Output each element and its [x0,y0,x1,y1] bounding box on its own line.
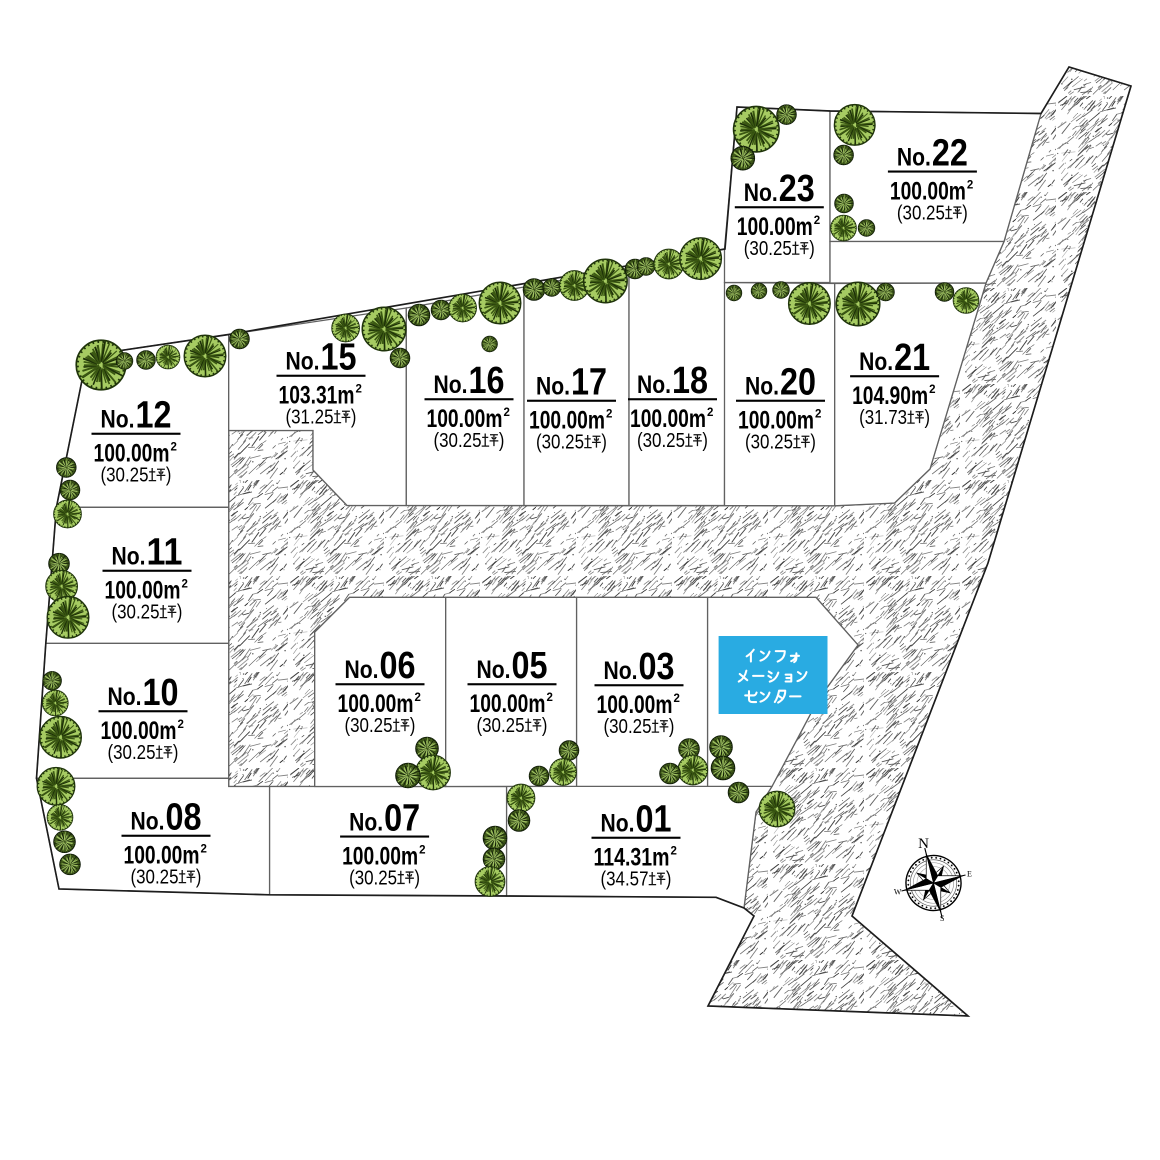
svg-text:06: 06 [380,645,416,687]
svg-text:100.00m: 100.00m [338,690,414,718]
svg-text:103.31m: 103.31m [279,382,355,410]
svg-text:): ) [196,867,202,889]
svg-text:2: 2 [814,215,820,227]
svg-text:No.: No. [131,808,165,836]
svg-text:No.: No. [601,810,635,838]
svg-text:2: 2 [504,407,510,419]
svg-text:): ) [666,869,672,891]
svg-text:2: 2 [606,409,612,421]
svg-text:104.90m: 104.90m [852,382,928,410]
svg-text:No.: No. [286,348,320,376]
svg-text:100.00m: 100.00m [94,440,170,468]
svg-text:(30.25: (30.25 [897,202,945,224]
svg-text:(30.25: (30.25 [477,715,525,737]
svg-text:17: 17 [571,362,607,404]
svg-text:114.31m: 114.31m [594,844,670,872]
svg-text:(30.25: (30.25 [345,715,393,737]
svg-text:100.00m: 100.00m [342,842,418,870]
svg-text:2: 2 [671,846,677,858]
svg-text:No.: No. [897,143,931,171]
svg-text:No.: No. [112,543,146,571]
svg-text:): ) [177,602,183,624]
svg-text:100.00m: 100.00m [597,691,673,719]
svg-text:): ) [542,715,548,737]
svg-text:11: 11 [147,532,183,574]
svg-text:100.00m: 100.00m [529,407,605,435]
svg-text:): ) [702,430,708,452]
svg-text:2: 2 [182,579,188,591]
svg-text:No.: No. [536,373,570,401]
svg-text:10: 10 [143,672,179,714]
svg-text:100.00m: 100.00m [101,717,177,745]
svg-text:No.: No. [477,656,511,684]
svg-text:No.: No. [859,348,893,376]
svg-text:(30.25: (30.25 [101,465,149,487]
svg-text:(30.25: (30.25 [536,432,584,454]
svg-text:2: 2 [707,407,713,419]
svg-text:(30.25: (30.25 [112,602,160,624]
svg-text:): ) [809,238,815,260]
svg-text:2: 2 [815,409,821,421]
svg-text:(30.25: (30.25 [745,432,793,454]
svg-text:100.00m: 100.00m [105,577,181,605]
svg-text:): ) [669,716,675,738]
svg-text:22: 22 [932,132,968,174]
svg-text:(34.57: (34.57 [601,869,649,891]
svg-text:E: E [967,870,972,879]
svg-text:01: 01 [636,799,672,841]
svg-text:N: N [918,836,929,852]
svg-text:): ) [415,867,421,889]
svg-text:(30.25: (30.25 [744,238,792,260]
svg-text:No.: No. [745,373,779,401]
svg-text:No.: No. [604,657,638,685]
svg-text:(31.25: (31.25 [286,407,334,429]
svg-text:08: 08 [166,797,202,839]
svg-text:(30.25: (30.25 [637,430,685,452]
svg-text:2: 2 [967,179,973,191]
svg-text:(30.25: (30.25 [349,867,397,889]
svg-text:): ) [810,432,816,454]
svg-text:(30.25: (30.25 [604,716,652,738]
svg-text:07: 07 [384,797,420,839]
svg-text:): ) [173,742,179,764]
svg-text:03: 03 [639,646,675,688]
svg-text:No.: No. [744,179,778,207]
svg-text:100.00m: 100.00m [470,690,546,718]
svg-text:16: 16 [469,360,505,402]
svg-text:): ) [601,432,607,454]
svg-text:(30.25: (30.25 [131,867,179,889]
svg-text:2: 2 [356,384,362,396]
svg-text:No.: No. [101,406,135,434]
svg-text:2: 2 [547,692,553,704]
svg-text:20: 20 [780,362,816,404]
svg-text:No.: No. [434,371,468,399]
svg-text:(30.25: (30.25 [434,430,482,452]
svg-text:100.00m: 100.00m [890,177,966,205]
svg-text:W: W [894,888,902,897]
svg-text:No.: No. [345,656,379,684]
svg-text:2: 2 [178,719,184,731]
svg-text:100.00m: 100.00m [738,407,814,435]
svg-text:S: S [940,914,944,923]
svg-text:No.: No. [108,683,142,711]
svg-text:05: 05 [512,645,548,687]
svg-text:100.00m: 100.00m [427,405,503,433]
svg-text:2: 2 [415,692,421,704]
svg-text:23: 23 [779,168,815,210]
svg-text:2: 2 [929,384,935,396]
svg-text:(31.73: (31.73 [859,407,907,429]
svg-text:2: 2 [171,442,177,454]
svg-text:18: 18 [672,360,708,402]
svg-text:No.: No. [349,808,383,836]
svg-text:No.: No. [637,371,671,399]
svg-text:): ) [499,430,505,452]
svg-text:15: 15 [321,337,357,379]
svg-text:100.00m: 100.00m [124,842,200,870]
svg-text:2: 2 [201,844,207,856]
svg-text:): ) [166,465,172,487]
svg-text:100.00m: 100.00m [630,405,706,433]
svg-text:2: 2 [674,693,680,705]
svg-text:(30.25: (30.25 [108,742,156,764]
svg-text:): ) [925,407,931,429]
svg-text:21: 21 [894,337,930,379]
svg-text:): ) [962,202,968,224]
svg-text:2: 2 [419,844,425,856]
svg-text:): ) [410,715,416,737]
svg-text:): ) [351,407,357,429]
svg-text:12: 12 [136,395,172,437]
svg-text:100.00m: 100.00m [737,213,813,241]
